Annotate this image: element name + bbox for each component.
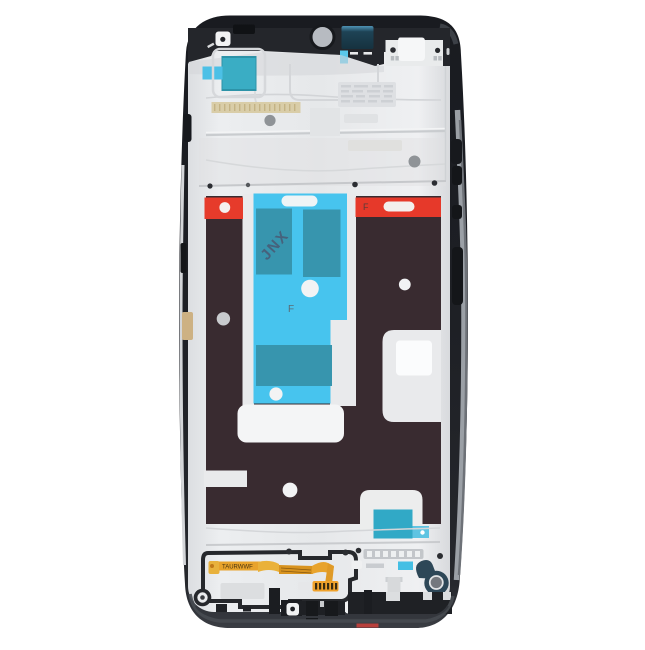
svg-text:F: F: [288, 304, 294, 315]
svg-text:TAURW­WF: TAURW­WF: [222, 565, 253, 571]
svg-text:F: F: [363, 202, 369, 212]
